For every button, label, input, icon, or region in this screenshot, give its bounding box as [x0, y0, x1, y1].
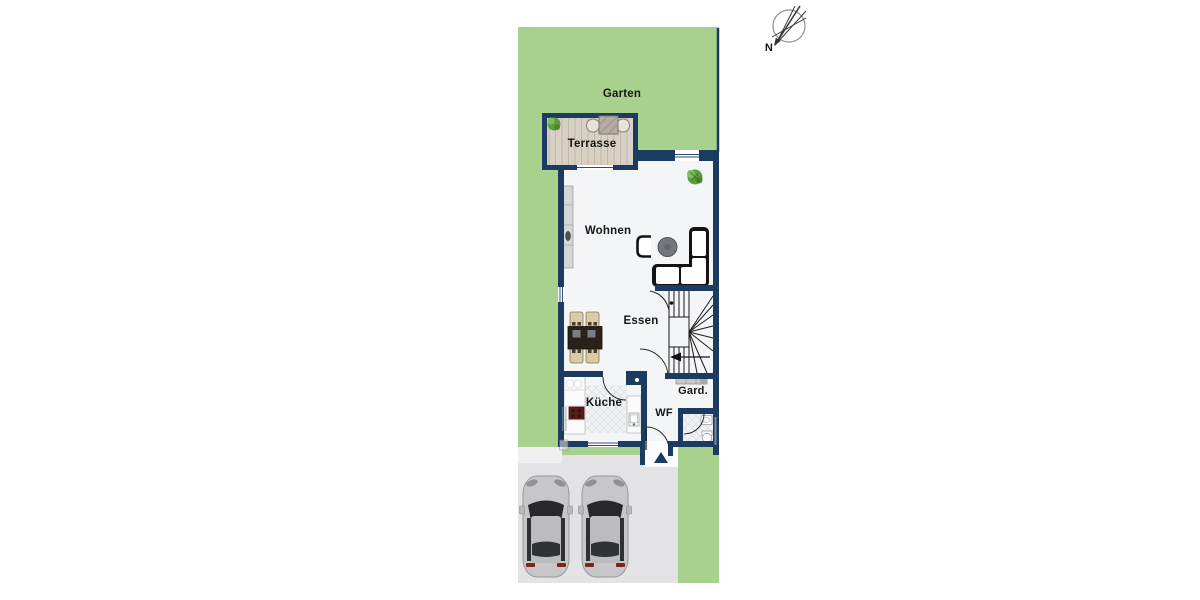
- compass-icon: [772, 6, 806, 46]
- watermark-right: [715, 417, 717, 445]
- room-label-wohnen: Wohnen: [585, 225, 631, 237]
- armchair: [638, 237, 652, 257]
- floorplan-page: Garten Terrasse Wohnen Essen Küche WF Ga…: [0, 0, 1200, 600]
- kitchen-floor: [585, 385, 627, 433]
- stove: [569, 407, 584, 419]
- car-right: [579, 476, 632, 577]
- room-label-terrasse: Terrasse: [568, 138, 617, 150]
- room-label-essen: Essen: [624, 315, 659, 327]
- room-label-garten: Garten: [603, 88, 641, 100]
- living-sideboard: [564, 186, 574, 268]
- car-left: [520, 476, 573, 577]
- coffee-table: [658, 238, 677, 257]
- terrace-dining-set: [587, 116, 630, 134]
- kitchen-sink: [629, 413, 639, 426]
- room-label-wf: WF: [655, 407, 673, 419]
- compass-north-label: N: [765, 42, 773, 54]
- floorplan-graphics: [0, 0, 1200, 600]
- room-label-gard: Gard.: [678, 385, 708, 397]
- terrace-plant-icon: [548, 118, 561, 131]
- room-label-kueche: Küche: [586, 397, 622, 409]
